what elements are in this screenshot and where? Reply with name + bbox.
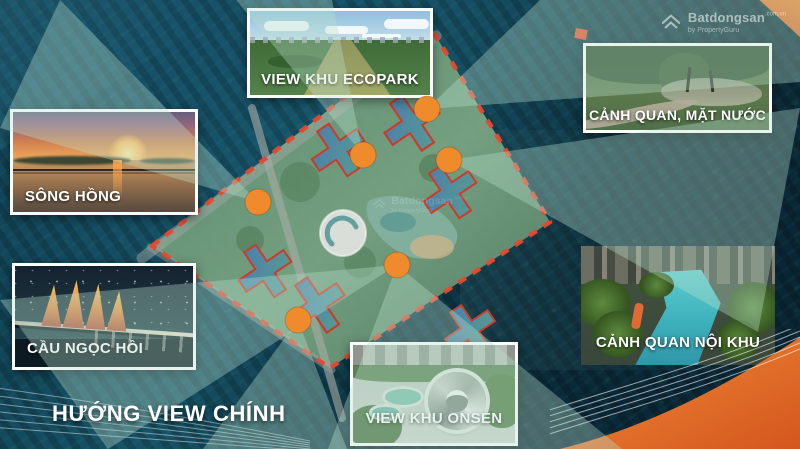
batdongsan-watermark-faint: Batdongsan.com.vn by PropertyGuru (372, 194, 470, 213)
callout-label: SÔNG HỒNG (13, 188, 195, 205)
batdongsan-house-icon (660, 12, 682, 32)
callout-label: VIEW KHU ONSEN (353, 410, 515, 427)
page-title: HƯỚNG VIEW CHÍNH (52, 401, 286, 427)
linear-building (353, 345, 515, 367)
batdongsan-house-icon (372, 198, 386, 211)
sunset-sky (13, 112, 195, 160)
callout-cau-ngoc-hoi: CẦU NGỌC HỒI (12, 263, 196, 370)
bridge-silhouette (13, 169, 195, 171)
onsen-aerial-photo (353, 345, 515, 443)
marketing-infographic: SÔNG HỒNG VIEW KHU ECOPARK CẢNH QUAN, MẶ… (0, 0, 800, 449)
callout-label: CẦU NGỌC HỒI (15, 340, 193, 357)
clouds (264, 21, 309, 31)
batdongsan-watermark: Batdongsan.com.vn by PropertyGuru (660, 10, 786, 34)
callout-mat-nuoc: CẢNH QUAN, MẶT NƯỚC (583, 43, 772, 133)
callout-onsen: VIEW KHU ONSEN (350, 342, 518, 446)
callout-ecopark: VIEW KHU ECOPARK (247, 8, 433, 98)
orange-swoosh-corner (550, 329, 800, 449)
sand-bank (268, 55, 322, 68)
shoreline-2 (140, 158, 195, 164)
red-square-accent (574, 28, 588, 40)
callout-label: CẢNH QUAN, MẶT NƯỚC (586, 107, 769, 123)
callout-song-hong: SÔNG HỒNG (10, 109, 198, 215)
callout-label: VIEW KHU ECOPARK (250, 71, 430, 88)
